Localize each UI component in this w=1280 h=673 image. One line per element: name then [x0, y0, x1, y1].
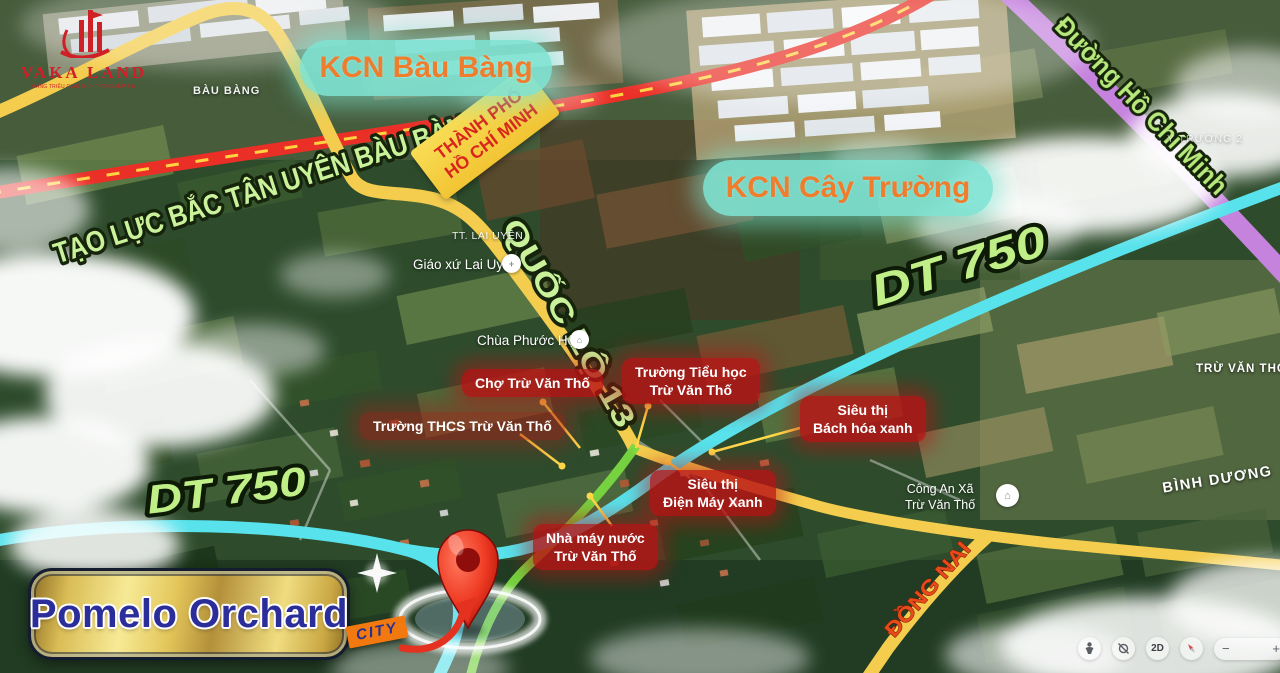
poi-text: Trường Tiểu học	[635, 363, 747, 381]
church-icon[interactable]: +	[502, 254, 521, 273]
place-cong-an-xa: Công An Xã Trừ Văn Thố	[905, 481, 975, 514]
compass-button[interactable]	[1180, 637, 1203, 660]
poi-cho-tru-van-tho: Chợ Trừ Văn Thố	[462, 369, 603, 397]
poi-nha-may-nuoc: Nhà máy nước Trừ Văn Thố	[533, 524, 658, 570]
zoom-out-button[interactable]: −	[1222, 641, 1230, 656]
compass-icon	[1185, 642, 1198, 655]
place-line: Công An Xã	[905, 481, 975, 497]
poi-text: Điện Máy Xanh	[663, 493, 763, 511]
place-cay-truong-2: Y TRƯỜNG 2	[1167, 133, 1243, 145]
zoom-control[interactable]: − +	[1214, 638, 1280, 660]
poi-text: Trừ Văn Thố	[635, 381, 747, 399]
poi-text: Nhà máy nước	[546, 529, 645, 547]
project-banner: Pomelo Orchard	[28, 568, 350, 660]
poi-text: Bách hóa xanh	[813, 419, 913, 437]
logo-tagline: HÀNG TRIỆU GIAO DỊCH TRỌN NIỀM TIN	[14, 84, 154, 90]
poi-dien-may-xanh: Siêu thị Điện Máy Xanh	[650, 470, 776, 516]
vaka-land-logo: VAKA LAND HÀNG TRIỆU GIAO DỊCH TRỌN NIỀM…	[14, 6, 154, 90]
place-chua-phuoc-hoi: Chùa Phước Hội	[477, 333, 578, 348]
poi-text: Siêu thị	[813, 401, 913, 419]
logo-name: VAKA LAND	[14, 63, 154, 83]
poi-text: Trừ Văn Thố	[546, 547, 645, 565]
pegman-icon	[1084, 642, 1095, 655]
police-station-icon[interactable]: ⌂	[996, 484, 1019, 507]
street-view-button[interactable]	[1078, 637, 1101, 660]
location-off-icon	[1117, 642, 1130, 655]
poi-text: Chợ Trừ Văn Thố	[475, 374, 590, 392]
poi-text: Siêu thị	[663, 475, 763, 493]
banner-kcn-bau-bang: KCN Bàu Bàng	[300, 40, 552, 96]
banner-kcn-cay-truong: KCN Cây Trường	[703, 160, 993, 216]
map-controls: 2D − +	[1078, 637, 1280, 660]
poi-text: Trường THCS Trừ Văn Thố	[373, 417, 552, 435]
poi-bach-hoa-xanh: Siêu thị Bách hóa xanh	[800, 396, 926, 442]
poi-truong-thcs: Trường THCS Trừ Văn Thố	[360, 412, 565, 440]
place-line: Trừ Văn Thố	[905, 497, 975, 513]
view-mode-button[interactable]: 2D	[1146, 637, 1169, 660]
vaka-land-logo-icon	[51, 6, 117, 58]
pagoda-icon[interactable]: ⌂	[570, 330, 589, 349]
map-canvas[interactable]: TẠO LỰC BẮC TÂN UYÊN BÀU BÀNG QUỐC LỘ 13…	[0, 0, 1280, 673]
place-tt-lai-uyen: TT. LAI UYÊN	[452, 230, 523, 242]
my-location-button[interactable]	[1112, 637, 1135, 660]
poi-truong-tieu-hoc: Trường Tiểu học Trừ Văn Thố	[622, 358, 760, 404]
place-tru-van-tho: TRỪ VĂN THỐ	[1196, 363, 1280, 375]
zoom-in-button[interactable]: +	[1272, 641, 1280, 656]
project-name: Pomelo Orchard	[30, 592, 348, 637]
place-bau-bang: BÀU BÀNG	[193, 85, 260, 97]
